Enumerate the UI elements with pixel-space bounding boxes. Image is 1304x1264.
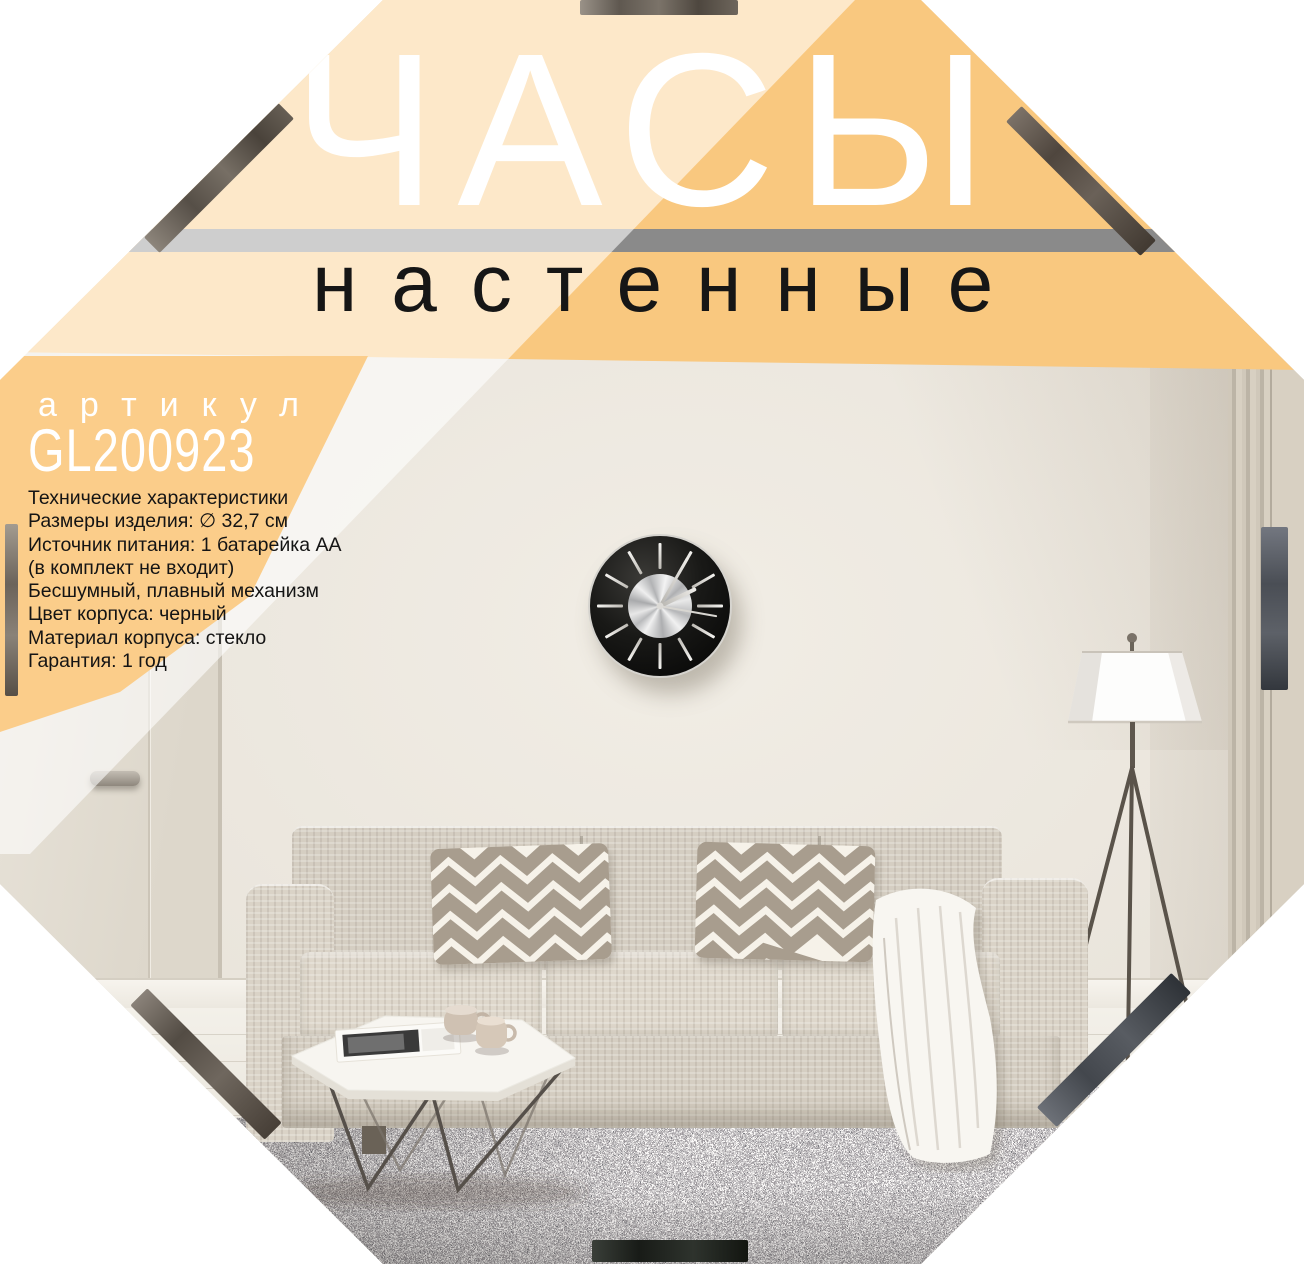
clock-tick [605, 573, 629, 589]
clock-tick [597, 605, 623, 608]
clock-tick [697, 605, 723, 608]
specs-line: Гарантия: 1 год [28, 650, 368, 673]
specs-line: Цвет корпуса: черный [28, 603, 368, 626]
lamp-finial [1127, 633, 1137, 643]
product-subtitle: настенные [312, 243, 1027, 325]
clock-tick [627, 637, 643, 661]
clock-tick [677, 637, 693, 661]
specs-line: Технические характеристики [28, 487, 368, 510]
throw-blanket [818, 878, 1018, 1173]
clock-tick [627, 551, 643, 575]
clock-tick [691, 623, 715, 639]
box-clip-bottom [592, 1240, 748, 1262]
box-clip-right [1261, 527, 1288, 690]
specs-line: (в комплект не входит) [28, 557, 368, 580]
specs-line: Размеры изделия: ∅ 32,7 см [28, 510, 368, 533]
coffee-table [270, 1000, 600, 1215]
clock-tick [659, 543, 662, 569]
product-title: ЧАСЫ [292, 22, 1008, 240]
specs-list: Технические характеристики Размеры издел… [28, 487, 368, 673]
specs-line: Источник питания: 1 батарейка АА [28, 534, 368, 557]
box-clip-top [580, 0, 738, 15]
specs-line: Материал корпуса: стекло [28, 627, 368, 650]
clock-tick [605, 623, 629, 639]
box-clip-left [5, 524, 18, 696]
article-code: GL200923 [28, 420, 256, 480]
clock-center-cap [657, 603, 664, 610]
clock-tick [659, 643, 662, 669]
specs-line: Бесшумный, плавный механизм [28, 580, 368, 603]
chevron-pillow-left [430, 843, 612, 965]
wall-clock [588, 534, 732, 678]
product-card: ЧАСЫ настенные артикул GL200923 Техничес… [0, 0, 1304, 1264]
octagon-box-lid: ЧАСЫ настенные артикул GL200923 Техничес… [0, 0, 1304, 1264]
